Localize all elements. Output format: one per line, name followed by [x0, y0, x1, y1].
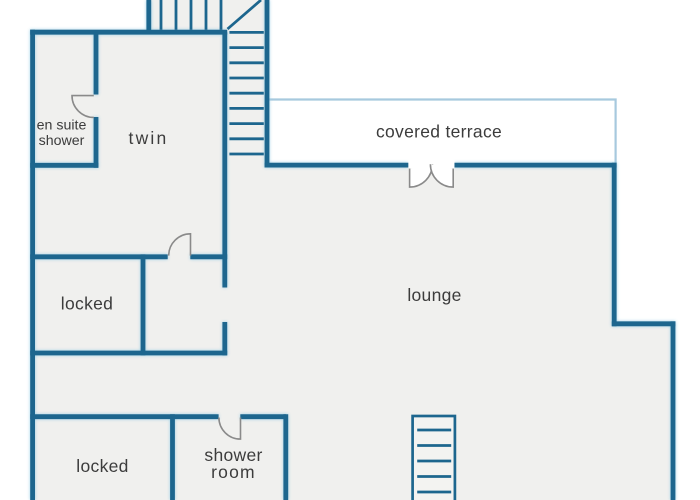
svg-text:covered terrace: covered terrace	[376, 122, 502, 142]
svg-text:en suite: en suite	[37, 118, 87, 134]
svg-text:lounge: lounge	[407, 285, 461, 305]
svg-text:room: room	[211, 462, 256, 482]
svg-text:locked: locked	[76, 456, 128, 476]
svg-text:locked: locked	[61, 294, 113, 314]
svg-text:shower: shower	[39, 133, 85, 149]
svg-text:twin: twin	[129, 128, 169, 148]
